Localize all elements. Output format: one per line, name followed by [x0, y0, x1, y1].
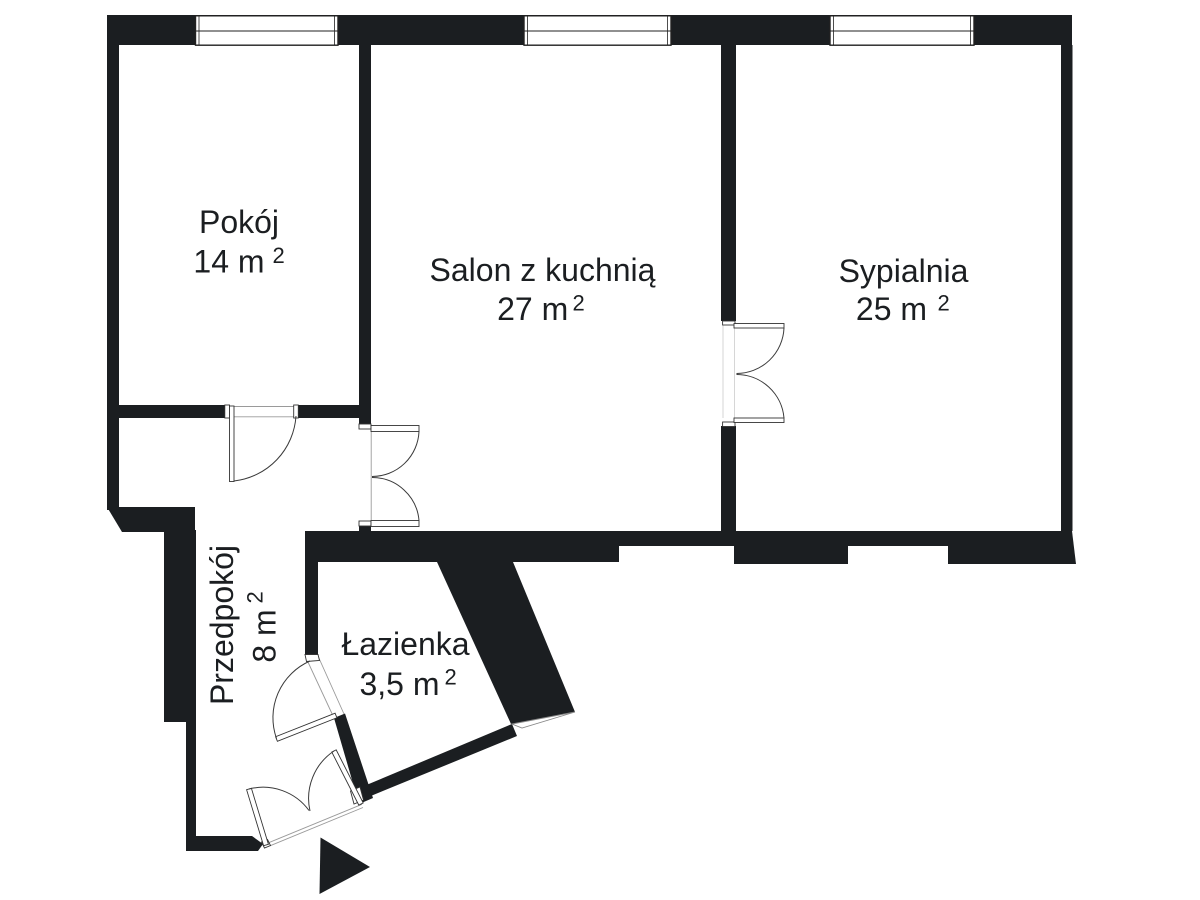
- svg-text:Salon z kuchnią: Salon z kuchnią: [430, 252, 656, 288]
- svg-text:14 m: 14 m: [193, 244, 264, 280]
- svg-text:25 m: 25 m: [856, 291, 927, 327]
- svg-text:2: 2: [573, 291, 585, 316]
- svg-text:2: 2: [938, 291, 950, 316]
- svg-text:3,5 m: 3,5 m: [359, 666, 439, 702]
- svg-text:27 m: 27 m: [497, 291, 568, 327]
- svg-text:8 m: 8 m: [247, 609, 283, 662]
- svg-text:2: 2: [445, 665, 457, 690]
- svg-text:Pokój: Pokój: [199, 204, 279, 240]
- svg-text:Przedpokój: Przedpokój: [204, 545, 240, 705]
- svg-text:Sypialnia: Sypialnia: [839, 253, 969, 289]
- svg-text:2: 2: [243, 591, 268, 603]
- svg-text:2: 2: [273, 243, 285, 268]
- svg-text:Łazienka: Łazienka: [341, 626, 469, 662]
